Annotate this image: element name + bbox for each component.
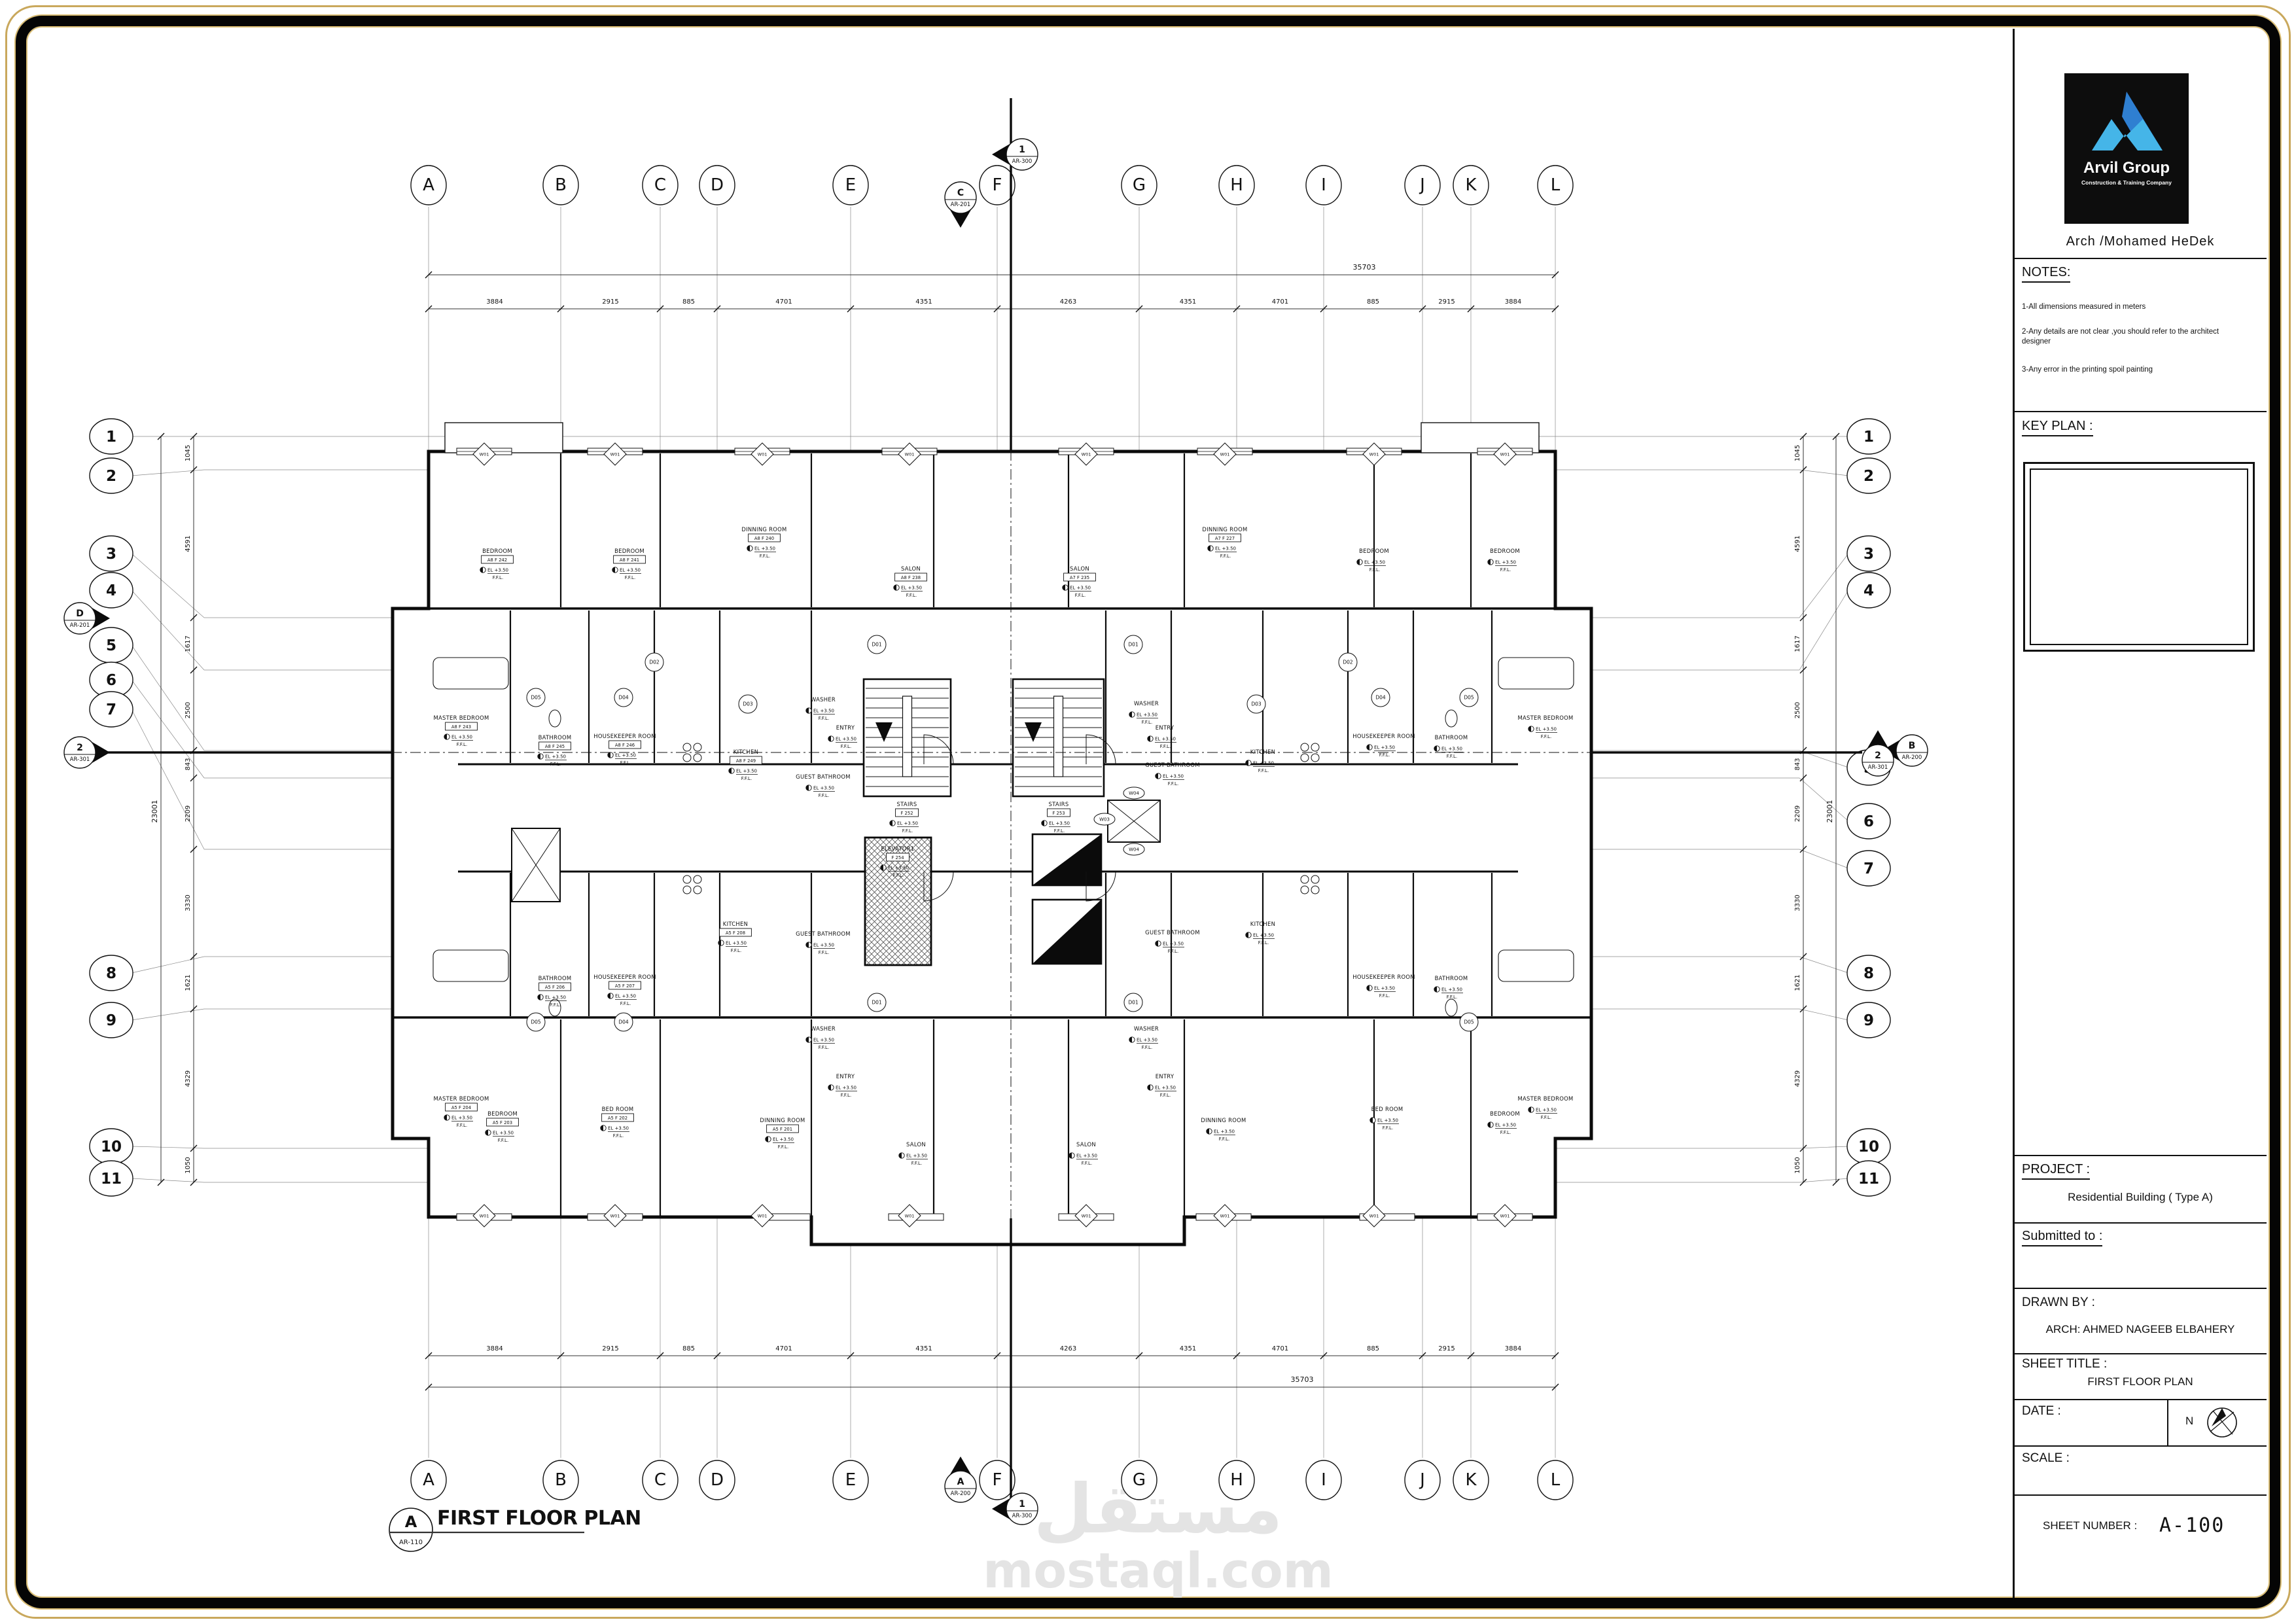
- door-tag-D01: D01: [868, 993, 886, 1012]
- svg-text:F.F.L.: F.F.L.: [1168, 949, 1178, 954]
- project-label: PROJECT :: [2022, 1162, 2090, 1177]
- project-value: Residential Building ( Type A): [2014, 1191, 2267, 1204]
- svg-text:SALON: SALON: [1076, 1141, 1096, 1148]
- svg-text:AR-110: AR-110: [399, 1539, 423, 1546]
- titleblock-divider: [2014, 258, 2267, 259]
- svg-text:F.F.L.: F.F.L.: [841, 744, 851, 749]
- grid-bubble-right-8: 8: [1847, 955, 1890, 991]
- grid-bubble-bottom-C: C: [643, 1460, 678, 1500]
- svg-text:A: A: [405, 1513, 417, 1531]
- svg-text:C: C: [654, 1470, 666, 1490]
- svg-text:D01: D01: [872, 642, 882, 648]
- floor-plan-drawing: AABBCCDDEEFFGGHHIIJJKKLL1122334455667788…: [0, 0, 2296, 1624]
- svg-text:W01: W01: [758, 452, 768, 457]
- grid-bubble-bottom-A: A: [411, 1460, 446, 1500]
- svg-text:EL +3.50: EL +3.50: [1536, 1108, 1557, 1113]
- svg-text:1: 1: [106, 429, 116, 446]
- svg-text:KITCHEN: KITCHEN: [1250, 749, 1275, 755]
- svg-text:D05: D05: [1464, 1019, 1474, 1025]
- svg-text:3330: 3330: [185, 894, 192, 911]
- svg-text:EL +3.50: EL +3.50: [1495, 560, 1516, 565]
- svg-text:EL +3.50: EL +3.50: [1536, 727, 1557, 732]
- svg-text:2: 2: [1863, 468, 1874, 485]
- svg-text:EL +3.50: EL +3.50: [1155, 1086, 1176, 1091]
- svg-text:3: 3: [1863, 546, 1874, 563]
- svg-text:4701: 4701: [1272, 1345, 1288, 1352]
- svg-text:AR-200: AR-200: [1902, 754, 1922, 761]
- svg-text:F.F.L.: F.F.L.: [819, 950, 829, 955]
- grid-bubble-bottom-K: K: [1453, 1460, 1489, 1500]
- svg-text:F.F.L.: F.F.L.: [760, 554, 770, 559]
- svg-text:1: 1: [1019, 145, 1025, 155]
- svg-text:F.F.L.: F.F.L.: [457, 742, 467, 747]
- svg-text:4329: 4329: [185, 1070, 192, 1087]
- grid-bubble-left-8: 8: [90, 955, 133, 991]
- svg-text:2915: 2915: [602, 298, 618, 306]
- svg-text:BEDROOM: BEDROOM: [1490, 548, 1520, 554]
- svg-text:GUEST BATHROOM: GUEST BATHROOM: [1145, 762, 1200, 768]
- svg-text:8: 8: [106, 965, 116, 982]
- door-tag-D05: D05: [527, 1013, 545, 1031]
- grid-bubble-top-H: H: [1219, 166, 1254, 205]
- company-logo-mark: Arvil Group Construction & Training Comp…: [2064, 73, 2189, 224]
- svg-text:35703: 35703: [1353, 263, 1376, 272]
- svg-text:EL +3.50: EL +3.50: [754, 546, 775, 552]
- svg-text:A: A: [957, 1477, 964, 1487]
- svg-text:2500: 2500: [185, 702, 192, 718]
- svg-text:EL +3.50: EL +3.50: [1163, 942, 1184, 947]
- svg-text:W04: W04: [1129, 847, 1139, 853]
- svg-text:EL +3.50: EL +3.50: [615, 994, 636, 999]
- svg-text:F.F.L.: F.F.L.: [1160, 1093, 1171, 1098]
- svg-text:4: 4: [106, 582, 116, 599]
- drawnby-value: ARCH: AHMED NAGEEB ELBAHERY: [2014, 1323, 2267, 1336]
- svg-text:W01: W01: [1082, 452, 1091, 457]
- notes-heading: NOTES:: [2022, 265, 2070, 280]
- sheettitle-value: FIRST FLOOR PLAN: [2014, 1375, 2267, 1388]
- grid-bubble-right-10: 10: [1847, 1129, 1890, 1164]
- svg-text:A7 F 235: A7 F 235: [1070, 575, 1089, 580]
- svg-text:A8 F 238: A8 F 238: [901, 575, 921, 580]
- svg-text:WASHER: WASHER: [1134, 1025, 1159, 1032]
- svg-text:A5 F 204: A5 F 204: [451, 1105, 471, 1110]
- svg-text:A5 F 203: A5 F 203: [493, 1120, 512, 1125]
- svg-text:EL +3.50: EL +3.50: [1253, 933, 1274, 938]
- svg-text:W01: W01: [905, 452, 915, 457]
- titleblock-left-border: [2013, 29, 2015, 1598]
- svg-text:GUEST BATHROOM: GUEST BATHROOM: [796, 930, 851, 937]
- svg-text:F.F.L.: F.F.L.: [493, 575, 503, 580]
- svg-text:EL +3.50: EL +3.50: [1215, 546, 1236, 552]
- svg-text:F.F.L.: F.F.L.: [613, 1133, 624, 1139]
- scale-label: SCALE :: [2022, 1451, 2070, 1466]
- svg-text:2: 2: [106, 468, 116, 485]
- grid-bubble-top-B: B: [543, 166, 578, 205]
- grid-bubble-top-E: E: [833, 166, 868, 205]
- grid-bubble-bottom-B: B: [543, 1460, 578, 1500]
- svg-text:W01: W01: [1500, 1214, 1510, 1219]
- svg-text:D02: D02: [1343, 660, 1353, 665]
- svg-text:F.F.L.: F.F.L.: [819, 1045, 829, 1050]
- grid-bubble-top-F: F: [980, 166, 1015, 205]
- grid-bubble-left-7: 7: [90, 692, 133, 727]
- svg-text:F.F.L.: F.F.L.: [906, 593, 917, 598]
- company-logo: Arvil Group Construction & Training Comp…: [2064, 73, 2189, 224]
- svg-text:F.F.L.: F.F.L.: [620, 1001, 631, 1006]
- svg-text:EL +3.50: EL +3.50: [1364, 560, 1385, 565]
- svg-text:D05: D05: [531, 695, 541, 701]
- svg-text:2209: 2209: [185, 805, 192, 822]
- svg-text:ELEVATOR1: ELEVATOR1: [881, 845, 914, 852]
- svg-text:ENTRY: ENTRY: [1156, 1073, 1174, 1080]
- svg-text:W01: W01: [610, 452, 620, 457]
- svg-text:B: B: [1909, 741, 1916, 751]
- svg-text:EL +3.50: EL +3.50: [1049, 821, 1070, 826]
- svg-text:EL +3.50: EL +3.50: [813, 943, 834, 948]
- svg-text:BATHROOM: BATHROOM: [1435, 975, 1468, 981]
- window-tag-W04: W04: [1123, 787, 1144, 799]
- svg-text:K: K: [1465, 1470, 1477, 1490]
- grid-bubble-left-11: 11: [90, 1161, 133, 1196]
- section-marker-C-AR-201: CAR-201: [945, 182, 976, 228]
- svg-text:EL +3.50: EL +3.50: [1137, 1038, 1157, 1043]
- svg-text:F.F.L.: F.F.L.: [1168, 781, 1178, 786]
- grid-bubble-left-5: 5: [90, 627, 133, 663]
- svg-text:D: D: [76, 609, 84, 619]
- svg-text:F.F.L.: F.F.L.: [819, 793, 829, 798]
- building-walls: [393, 423, 1591, 1244]
- logo-company-text: Arvil Group: [2083, 159, 2170, 177]
- keyplan-heading: KEY PLAN :: [2022, 419, 2093, 434]
- svg-text:1617: 1617: [185, 635, 192, 652]
- svg-text:4351: 4351: [1180, 298, 1196, 306]
- svg-text:4701: 4701: [775, 298, 792, 306]
- architect-line: Arch /Mohamed HeDek: [2014, 234, 2267, 249]
- svg-text:F.F.L.: F.F.L.: [1142, 720, 1152, 725]
- note-item-3: 3-Any error in the printing spoil painti…: [2022, 365, 2238, 375]
- svg-text:SALON: SALON: [906, 1141, 926, 1148]
- date-label: DATE :: [2022, 1404, 2061, 1419]
- svg-text:KITCHEN: KITCHEN: [1250, 921, 1275, 927]
- grid-bubble-right-4: 4: [1847, 573, 1890, 608]
- svg-text:C: C: [654, 175, 666, 195]
- grid-bubble-top-D: D: [699, 166, 735, 205]
- svg-text:HOUSEKEEPER ROOM: HOUSEKEEPER ROOM: [593, 733, 656, 739]
- svg-text:KITCHEN: KITCHEN: [733, 749, 758, 755]
- keyplan-box-inner: [2030, 468, 2248, 645]
- svg-text:ENTRY: ENTRY: [1156, 724, 1174, 731]
- svg-text:3884: 3884: [1505, 1345, 1521, 1352]
- svg-text:H: H: [1230, 175, 1243, 195]
- svg-text:EL +3.50: EL +3.50: [813, 1038, 834, 1043]
- svg-text:B: B: [555, 1470, 567, 1490]
- north-compass-icon: [2204, 1404, 2240, 1441]
- grid-bubble-bottom-E: E: [833, 1460, 868, 1500]
- svg-text:11: 11: [1858, 1171, 1879, 1188]
- svg-text:F.F.L.: F.F.L.: [1054, 828, 1065, 834]
- svg-text:D: D: [711, 175, 724, 195]
- svg-text:E: E: [845, 1470, 856, 1490]
- door-tag-D04: D04: [614, 1013, 633, 1031]
- svg-text:WASHER: WASHER: [811, 1025, 836, 1032]
- svg-text:A5 F 208: A5 F 208: [726, 930, 745, 936]
- svg-text:F.F.L.: F.F.L.: [625, 575, 635, 580]
- svg-text:GUEST BATHROOM: GUEST BATHROOM: [1145, 929, 1200, 936]
- svg-text:D01: D01: [872, 1000, 882, 1006]
- svg-text:F.F.L.: F.F.L.: [620, 760, 631, 766]
- svg-text:W01: W01: [1082, 1214, 1091, 1219]
- svg-text:D04: D04: [618, 1019, 629, 1025]
- svg-text:4351: 4351: [915, 1345, 932, 1352]
- svg-text:A7 F 227: A7 F 227: [1215, 536, 1235, 541]
- svg-text:G: G: [1133, 175, 1146, 195]
- svg-text:W01: W01: [1220, 1214, 1230, 1219]
- svg-text:D04: D04: [618, 695, 629, 701]
- svg-text:STAIRS: STAIRS: [1049, 801, 1069, 807]
- svg-text:F.F.L.: F.F.L.: [1447, 995, 1457, 1000]
- svg-text:EL +3.50: EL +3.50: [836, 1086, 857, 1091]
- svg-text:EL +3.50: EL +3.50: [545, 995, 566, 1000]
- sheetnumber-value: A-100: [2159, 1514, 2225, 1537]
- svg-text:BATHROOM: BATHROOM: [539, 734, 572, 741]
- svg-text:2: 2: [77, 743, 83, 753]
- svg-text:W01: W01: [480, 452, 489, 457]
- svg-text:BATHROOM: BATHROOM: [539, 975, 572, 981]
- keyplan-box: [2023, 462, 2255, 652]
- svg-text:A8 F 245: A8 F 245: [545, 744, 565, 749]
- svg-text:843: 843: [1794, 758, 1801, 770]
- svg-text:8: 8: [1863, 965, 1874, 982]
- svg-text:F.F.L.: F.F.L.: [1379, 752, 1390, 758]
- svg-text:K: K: [1465, 175, 1477, 195]
- svg-text:EL +3.50: EL +3.50: [1155, 737, 1176, 742]
- sheettitle-label: SHEET TITLE :: [2022, 1357, 2107, 1371]
- svg-text:1050: 1050: [1794, 1157, 1801, 1173]
- svg-text:W01: W01: [905, 1214, 915, 1219]
- svg-text:10: 10: [1858, 1139, 1879, 1156]
- svg-text:EL +3.50: EL +3.50: [1076, 1154, 1097, 1159]
- drawnby-label: DRAWN BY :: [2022, 1296, 2095, 1310]
- svg-text:EL +3.50: EL +3.50: [615, 753, 636, 758]
- svg-text:BEDROOM: BEDROOM: [482, 548, 512, 554]
- svg-text:A8 F 240: A8 F 240: [754, 536, 774, 541]
- svg-text:EL +3.50: EL +3.50: [906, 1154, 927, 1159]
- svg-text:HOUSEKEEPER ROOM: HOUSEKEEPER ROOM: [1352, 974, 1415, 980]
- svg-text:3330: 3330: [1794, 894, 1801, 911]
- svg-text:F.F.L.: F.F.L.: [1258, 940, 1269, 945]
- svg-text:STAIRS: STAIRS: [897, 801, 917, 807]
- svg-text:885: 885: [1367, 1345, 1379, 1352]
- svg-text:F.F.L.: F.F.L.: [550, 762, 561, 767]
- svg-text:A: A: [423, 1470, 434, 1490]
- grid-bubble-top-J: J: [1405, 166, 1440, 205]
- grid-bubble-right-1: 1: [1847, 419, 1890, 454]
- svg-text:D01: D01: [1128, 1000, 1139, 1006]
- svg-text:A8 F 243: A8 F 243: [451, 724, 471, 730]
- svg-text:D05: D05: [1464, 695, 1474, 701]
- svg-text:F 252: F 252: [900, 811, 913, 816]
- svg-text:D03: D03: [743, 701, 753, 707]
- svg-text:HOUSEKEEPER ROOM: HOUSEKEEPER ROOM: [1352, 733, 1415, 739]
- grid-bubble-top-C: C: [643, 166, 678, 205]
- svg-text:1617: 1617: [1794, 635, 1801, 652]
- svg-text:843: 843: [185, 758, 192, 770]
- svg-text:6: 6: [1863, 813, 1874, 830]
- svg-text:EL +3.50: EL +3.50: [1377, 1118, 1398, 1123]
- svg-text:AR-200: AR-200: [951, 1491, 971, 1497]
- svg-text:AR-301: AR-301: [1868, 764, 1888, 771]
- svg-text:W01: W01: [1500, 452, 1510, 457]
- drawing-sheet: مستقل mostaql.com AABBCCDDEEFFGGHHIIJJKK…: [0, 0, 2296, 1624]
- svg-text:23001: 23001: [1826, 800, 1834, 823]
- svg-text:L: L: [1551, 175, 1561, 195]
- svg-text:1050: 1050: [185, 1157, 192, 1173]
- svg-text:7: 7: [106, 701, 116, 718]
- grid-bubble-bottom-J: J: [1405, 1460, 1440, 1500]
- svg-text:DINNING ROOM: DINNING ROOM: [1202, 526, 1247, 533]
- north-letter: N: [2185, 1415, 2193, 1428]
- section-marker-A-AR-200: AAR-200: [945, 1456, 976, 1502]
- svg-text:EL +3.50: EL +3.50: [1374, 986, 1395, 991]
- svg-text:2500: 2500: [1794, 702, 1801, 718]
- svg-text:EL +3.50: EL +3.50: [736, 769, 757, 774]
- grid-bubble-left-2: 2: [90, 458, 133, 493]
- svg-text:F.F.L.: F.F.L.: [1541, 1115, 1551, 1120]
- svg-text:F.F.L.: F.F.L.: [1500, 1130, 1511, 1135]
- svg-text:FIRST FLOOR PLAN: FIRST FLOOR PLAN: [437, 1507, 641, 1530]
- svg-text:F.F.L.: F.F.L.: [498, 1138, 508, 1143]
- svg-text:5: 5: [106, 637, 116, 654]
- svg-text:6: 6: [106, 672, 116, 689]
- svg-text:EL +3.50: EL +3.50: [1253, 761, 1274, 766]
- svg-text:3884: 3884: [486, 1345, 503, 1352]
- svg-text:BEDROOM: BEDROOM: [1359, 548, 1389, 554]
- svg-text:AR-201: AR-201: [70, 622, 90, 629]
- svg-text:F.F.L.: F.F.L.: [911, 1161, 922, 1166]
- svg-text:10: 10: [101, 1139, 122, 1156]
- svg-text:EL +3.50: EL +3.50: [1214, 1129, 1235, 1135]
- door-tag-D05: D05: [1460, 688, 1478, 707]
- svg-text:W01: W01: [610, 1214, 620, 1219]
- svg-text:D01: D01: [1128, 642, 1139, 648]
- svg-text:4263: 4263: [1060, 1345, 1076, 1352]
- svg-text:F.F.L.: F.F.L.: [1075, 593, 1086, 598]
- svg-text:4: 4: [1863, 582, 1874, 599]
- svg-text:MASTER BEDROOM: MASTER BEDROOM: [1517, 715, 1573, 721]
- svg-text:EL +3.50: EL +3.50: [1441, 747, 1462, 752]
- svg-text:885: 885: [682, 298, 695, 306]
- svg-text:F.F.L.: F.F.L.: [741, 776, 752, 781]
- grid-bubble-right-2: 2: [1847, 458, 1890, 493]
- svg-text:W01: W01: [480, 1214, 489, 1219]
- svg-text:WASHER: WASHER: [1134, 700, 1159, 707]
- svg-text:DINNING ROOM: DINNING ROOM: [760, 1117, 805, 1123]
- grid-bubble-left-3: 3: [90, 536, 133, 571]
- svg-text:H: H: [1230, 1470, 1243, 1490]
- svg-text:A: A: [423, 175, 434, 195]
- titleblock-divider: [2014, 1494, 2267, 1496]
- svg-text:2915: 2915: [602, 1345, 618, 1352]
- svg-text:EL +3.50: EL +3.50: [1441, 987, 1462, 993]
- svg-text:3884: 3884: [486, 298, 503, 306]
- svg-text:1045: 1045: [1794, 445, 1801, 461]
- date-cell-divider: [2167, 1399, 2168, 1445]
- svg-text:D05: D05: [531, 1019, 541, 1025]
- svg-text:MASTER BEDROOM: MASTER BEDROOM: [1517, 1095, 1573, 1102]
- svg-text:9: 9: [1863, 1012, 1874, 1029]
- window-tag-W03: W03: [1094, 813, 1115, 825]
- grid-bubble-bottom-G: G: [1122, 1460, 1157, 1500]
- svg-text:1: 1: [1863, 429, 1874, 446]
- svg-text:E: E: [845, 175, 856, 195]
- svg-text:A5 F 206: A5 F 206: [545, 985, 565, 990]
- svg-text:W03: W03: [1099, 817, 1110, 822]
- svg-text:GUEST BATHROOM: GUEST BATHROOM: [796, 773, 851, 780]
- svg-text:A8 F 246: A8 F 246: [615, 743, 635, 748]
- svg-text:W04: W04: [1129, 791, 1139, 796]
- svg-text:2915: 2915: [1438, 298, 1455, 306]
- svg-text:4329: 4329: [1794, 1070, 1801, 1087]
- svg-text:EL +3.50: EL +3.50: [813, 786, 834, 791]
- svg-text:AR-300: AR-300: [1012, 158, 1033, 165]
- svg-text:F.F.L.: F.F.L.: [1219, 1137, 1229, 1142]
- svg-text:C: C: [957, 188, 964, 198]
- svg-text:885: 885: [682, 1345, 695, 1352]
- svg-text:9: 9: [106, 1012, 116, 1029]
- svg-text:4263: 4263: [1060, 298, 1076, 306]
- svg-text:3: 3: [106, 546, 116, 563]
- door-tag-D05: D05: [1460, 1013, 1478, 1031]
- door-tag-D01: D01: [868, 635, 886, 654]
- grid-bubble-top-L: L: [1538, 166, 1573, 205]
- svg-text:W01: W01: [1369, 1214, 1379, 1219]
- svg-text:ENTRY: ENTRY: [836, 1073, 855, 1080]
- svg-text:2: 2: [1875, 750, 1881, 761]
- svg-text:F.F.L.: F.F.L.: [550, 1002, 561, 1008]
- svg-text:11: 11: [101, 1171, 122, 1188]
- svg-text:2915: 2915: [1438, 1345, 1455, 1352]
- grid-bubble-left-9: 9: [90, 1002, 133, 1038]
- titleblock-divider: [2014, 1288, 2267, 1289]
- svg-text:J: J: [1419, 175, 1425, 195]
- svg-text:7: 7: [1863, 860, 1874, 877]
- svg-text:EL +3.50: EL +3.50: [836, 737, 857, 742]
- svg-text:EL +3.50: EL +3.50: [726, 941, 747, 946]
- grid-bubble-top-G: G: [1122, 166, 1157, 205]
- svg-text:EL +3.50: EL +3.50: [545, 754, 566, 760]
- svg-text:EL +3.50: EL +3.50: [451, 1116, 472, 1121]
- svg-text:J: J: [1419, 1470, 1425, 1490]
- titleblock-divider: [2014, 1155, 2267, 1156]
- svg-text:EL +3.50: EL +3.50: [620, 568, 641, 573]
- svg-text:F.F.L.: F.F.L.: [819, 716, 829, 721]
- svg-text:EL +3.50: EL +3.50: [451, 735, 472, 740]
- note-item-1: 1-All dimensions measured in meters: [2022, 302, 2238, 312]
- svg-text:4591: 4591: [185, 535, 192, 552]
- svg-text:F.F.L.: F.F.L.: [1383, 1125, 1393, 1131]
- svg-text:F: F: [993, 1470, 1002, 1490]
- svg-text:W01: W01: [758, 1214, 768, 1219]
- svg-text:A5 F 207: A5 F 207: [615, 983, 635, 989]
- svg-text:F.F.L.: F.F.L.: [1258, 768, 1269, 773]
- svg-text:HOUSEKEEPER ROOM: HOUSEKEEPER ROOM: [593, 974, 656, 980]
- svg-text:F.F.L.: F.F.L.: [1500, 567, 1511, 573]
- grid-bubble-top-I: I: [1306, 166, 1341, 205]
- grid-bubble-bottom-L: L: [1538, 1460, 1573, 1500]
- svg-text:I: I: [1321, 175, 1326, 195]
- svg-text:F.F.L.: F.F.L.: [457, 1123, 467, 1128]
- svg-text:EL +3.50: EL +3.50: [1374, 745, 1395, 750]
